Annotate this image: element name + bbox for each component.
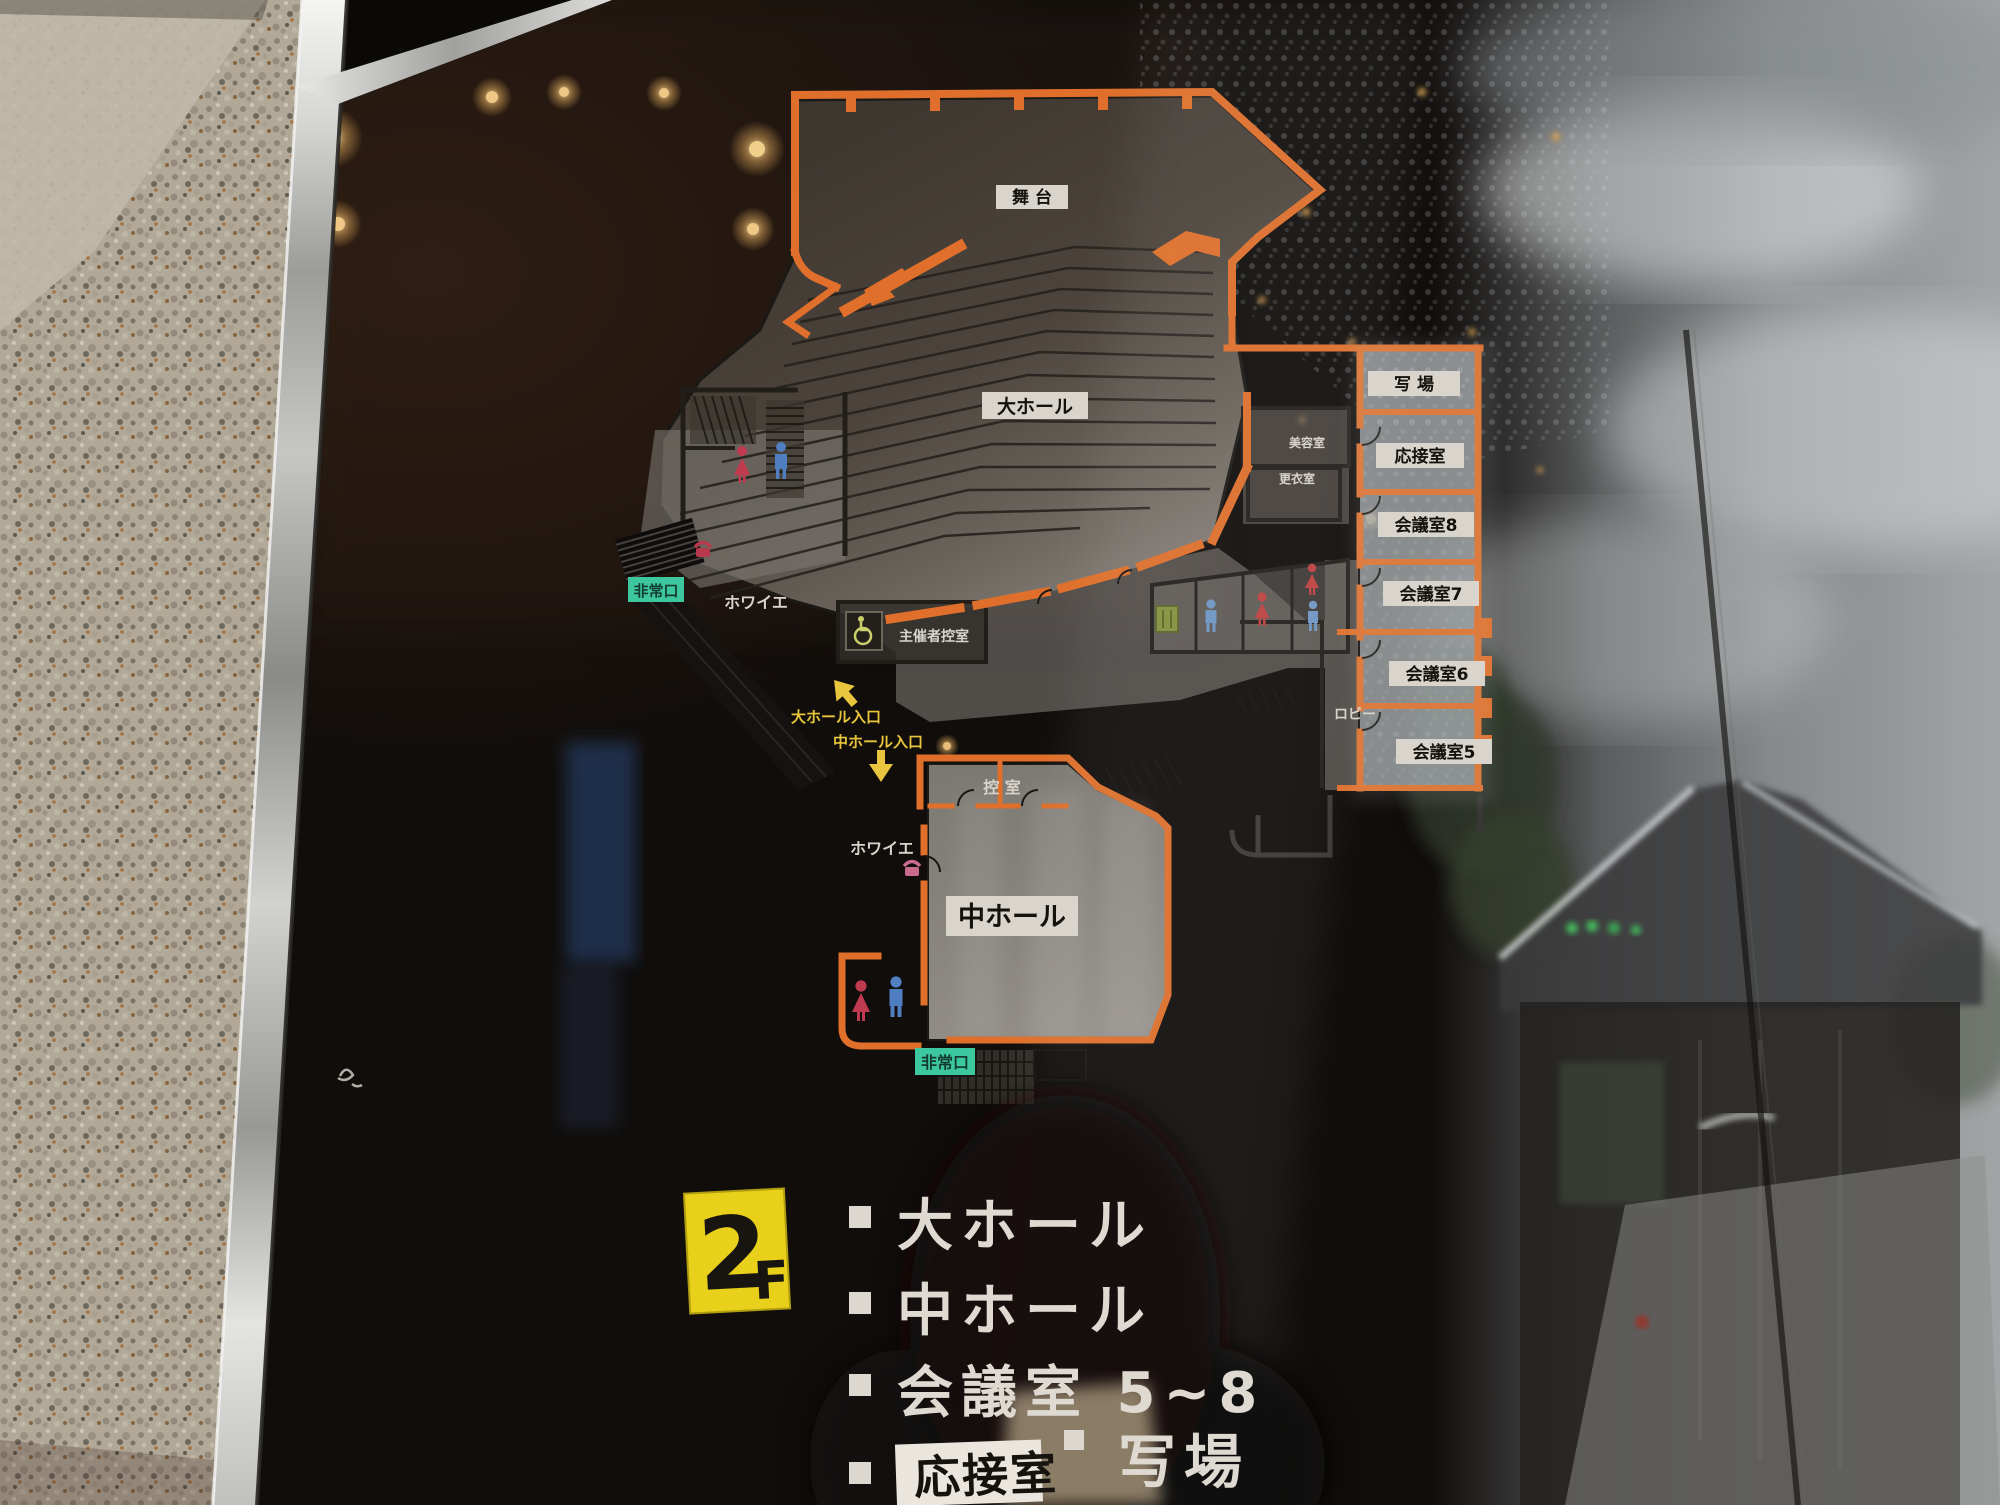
meeting-room-8-label-text: 会議室8	[1395, 515, 1458, 536]
floor-badge-letter: F	[752, 1250, 791, 1312]
legend-item-meeting-rooms: 会議室 5~8	[897, 1361, 1265, 1426]
medium-hall-entrance-label: 中ホール入口	[833, 733, 923, 751]
photo-studio-label: 写 場	[1368, 371, 1460, 396]
meeting-room-5-label: 会議室5	[1396, 739, 1492, 764]
meeting-room-7-label: 会議室7	[1383, 581, 1479, 606]
large-hall-label-text: 大ホール	[997, 395, 1073, 418]
medium-hall-label: 中ホール	[946, 896, 1078, 936]
foyer-upper-label: ホワイエ	[724, 593, 788, 612]
foyer-lower-label: ホワイエ	[850, 839, 914, 858]
emergency-exit-left-text: 非常口	[633, 582, 678, 600]
medium-hall-label-text: 中ホール	[958, 902, 1066, 933]
floor-badge: 2 F	[684, 1188, 791, 1315]
emergency-exit-left-sign: 非常口	[628, 577, 684, 602]
legend-item-photo-studio: 写場	[1118, 1428, 1250, 1496]
reception-room-label: 応接室	[1376, 443, 1464, 468]
lobby-label: ロビー	[1334, 707, 1376, 723]
organizer-room-label: 主催者控室	[899, 628, 969, 645]
stage-label-text: 舞 台	[1012, 187, 1052, 208]
legend-item-medium-hall: 中ホール	[897, 1279, 1153, 1344]
reception-room-sticker: 応接室	[895, 1439, 1059, 1505]
reception-room-label-text: 応接室	[1395, 446, 1446, 467]
photo-studio-label-text: 写 場	[1394, 375, 1434, 395]
wheelchair-icon	[846, 612, 882, 650]
sign-canvas: 舞 台 大ホール 中ホール 写 場 応接室 会議室8 会議室7	[0, 0, 2000, 1505]
large-hall-label: 大ホール	[982, 392, 1088, 419]
legend-item-large-hall: 大ホール	[897, 1194, 1153, 1259]
stage-label: 舞 台	[996, 185, 1068, 209]
beauty-room-label: 美容室	[1289, 435, 1325, 450]
emergency-exit-bottom-text: 非常口	[921, 1053, 969, 1072]
meeting-room-6-label-text: 会議室6	[1406, 664, 1469, 685]
changing-room-label: 更衣室	[1279, 471, 1315, 486]
emergency-exit-bottom-sign: 非常口	[915, 1048, 975, 1075]
meeting-room-5-label-text: 会議室5	[1413, 742, 1476, 763]
waiting-room-label: 控 室	[983, 778, 1021, 797]
meeting-room-8-label: 会議室8	[1378, 512, 1474, 537]
floor-map-sign-photo: 舞 台 大ホール 中ホール 写 場 応接室 会議室8 会議室7	[0, 0, 2000, 1505]
legend-item-reception: 応接室	[913, 1446, 1059, 1505]
large-hall-entrance-label: 大ホール入口	[791, 708, 881, 726]
meeting-room-7-label-text: 会議室7	[1400, 584, 1463, 605]
meeting-room-6-label: 会議室6	[1389, 661, 1485, 686]
